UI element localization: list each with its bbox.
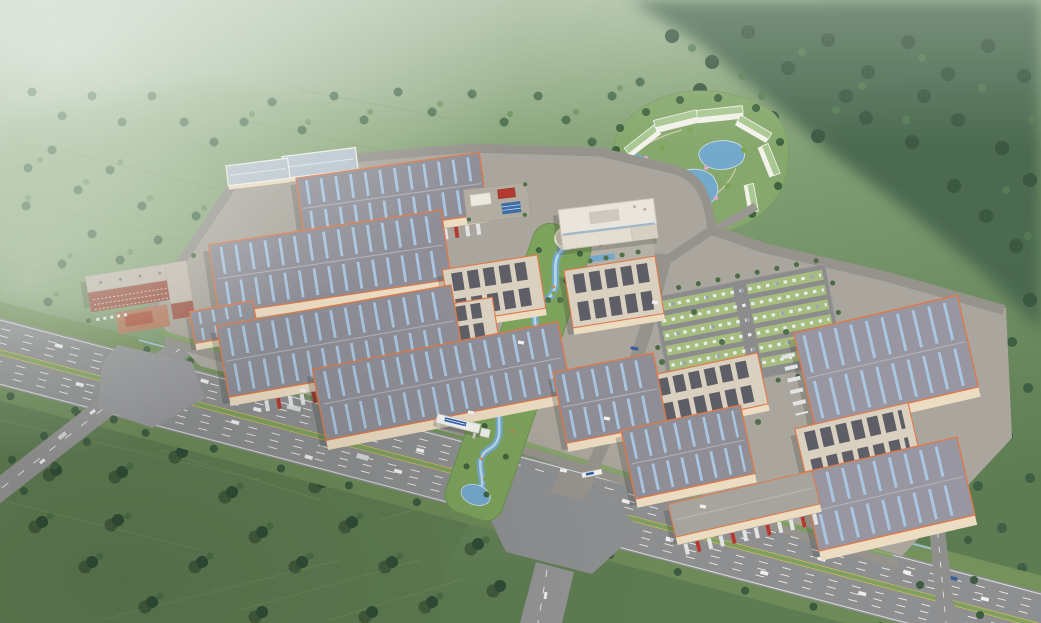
vignette (0, 0, 1041, 623)
aerial-rendering-canvas (0, 0, 1041, 623)
scene-svg (0, 0, 1041, 623)
atmosphere-overlays (0, 0, 1041, 623)
